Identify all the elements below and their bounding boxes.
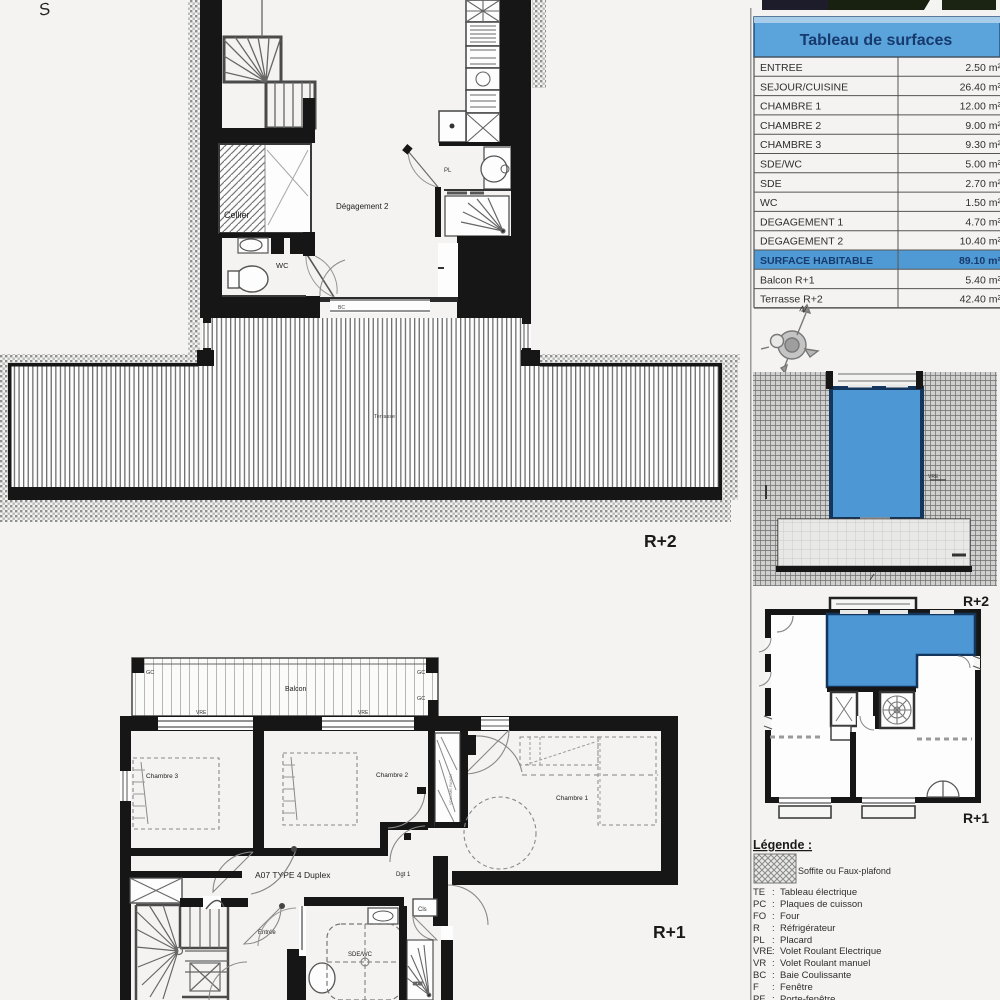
- svg-text:VOLUME RANGT: VOLUME RANGT: [448, 772, 453, 805]
- svg-text:TE: TE: [753, 887, 765, 898]
- svg-text:9.30 m²: 9.30 m²: [965, 139, 1000, 151]
- svg-text:89.10 m²: 89.10 m²: [959, 255, 1000, 267]
- svg-text:2.70 m²: 2.70 m²: [965, 178, 1000, 190]
- svg-text:R: R: [753, 923, 760, 934]
- svg-text:Plaques de cuisson: Plaques de cuisson: [780, 899, 862, 910]
- svg-text:Légende :: Légende :: [753, 838, 812, 852]
- svg-text:Fenêtre: Fenêtre: [780, 982, 813, 993]
- svg-text:PL: PL: [444, 168, 452, 174]
- svg-text::: :: [772, 970, 775, 981]
- svg-text:SDE: SDE: [760, 178, 782, 190]
- svg-text:BC: BC: [338, 305, 345, 311]
- svg-text:Four: Four: [780, 911, 800, 922]
- svg-text::: :: [772, 911, 775, 922]
- svg-text:GC: GC: [417, 696, 425, 702]
- svg-text:SDE/WC: SDE/WC: [348, 952, 373, 958]
- svg-text:Réfrigérateur: Réfrigérateur: [780, 923, 835, 934]
- svg-text:DEGAGEMENT 1: DEGAGEMENT 1: [760, 216, 843, 228]
- svg-text:Volet Roulant Electrique: Volet Roulant Electrique: [780, 946, 881, 957]
- svg-text:VRE: VRE: [358, 710, 369, 716]
- svg-text:A07 TYPE 4 Duplex: A07 TYPE 4 Duplex: [255, 870, 331, 880]
- svg-text:VR: VR: [753, 958, 766, 969]
- svg-text:5.40 m²: 5.40 m²: [965, 274, 1000, 286]
- svg-text:Terrasse R+2: Terrasse R+2: [760, 294, 823, 306]
- svg-text:WC: WC: [276, 261, 289, 270]
- svg-text:ENTREE: ENTREE: [760, 62, 803, 74]
- svg-text:VRE: VRE: [196, 710, 207, 716]
- svg-text:12.00 m²: 12.00 m²: [960, 101, 1000, 113]
- svg-text:R+1: R+1: [963, 810, 989, 826]
- svg-text:FO: FO: [753, 911, 766, 922]
- svg-text:1.50 m²: 1.50 m²: [965, 197, 1000, 209]
- svg-text:2.50 m²: 2.50 m²: [965, 62, 1000, 74]
- svg-text:SDE: SDE: [413, 981, 422, 986]
- svg-text:Tableau électrique: Tableau électrique: [780, 887, 857, 898]
- svg-text:WC: WC: [760, 197, 778, 209]
- svg-text:R+2: R+2: [963, 593, 989, 609]
- svg-text:Balcon: Balcon: [285, 686, 307, 693]
- svg-text:BC: BC: [753, 970, 766, 981]
- svg-text::: :: [772, 946, 775, 957]
- svg-text::: :: [772, 958, 775, 969]
- svg-text::: :: [772, 923, 775, 934]
- svg-text:Chambre 2: Chambre 2: [376, 772, 409, 779]
- svg-text:42.40 m²: 42.40 m²: [960, 294, 1000, 306]
- svg-text:Terrasse: Terrasse: [374, 414, 395, 420]
- svg-text:Chambre 3: Chambre 3: [146, 773, 179, 780]
- svg-text:Balcon R+1: Balcon R+1: [760, 274, 815, 286]
- svg-text:Cls: Cls: [418, 907, 427, 913]
- svg-text:Baie Coulissante: Baie Coulissante: [780, 970, 851, 981]
- svg-text:CHAMBRE 3: CHAMBRE 3: [760, 139, 821, 151]
- svg-text:Soffite ou Faux-plafond: Soffite ou Faux-plafond: [798, 866, 891, 876]
- svg-text:GC: GC: [417, 670, 425, 676]
- svg-text::: :: [772, 899, 775, 910]
- svg-text:SURFACE HABITABLE: SURFACE HABITABLE: [760, 255, 873, 267]
- svg-text:PL: PL: [753, 935, 765, 946]
- svg-text:4.70 m²: 4.70 m²: [965, 216, 1000, 228]
- svg-text::: :: [772, 887, 775, 898]
- svg-text:GC: GC: [146, 670, 154, 676]
- svg-text:R+2: R+2: [644, 531, 677, 551]
- svg-text:Cellier: Cellier: [224, 210, 250, 220]
- svg-text::: :: [772, 994, 775, 1000]
- svg-text:9.00 m²: 9.00 m²: [965, 120, 1000, 132]
- svg-text:Placard: Placard: [780, 935, 812, 946]
- svg-text:Porte-fenêtre: Porte-fenêtre: [780, 994, 835, 1000]
- svg-text:Tableau de surfaces: Tableau de surfaces: [800, 32, 953, 49]
- svg-text:CHAMBRE 2: CHAMBRE 2: [760, 120, 821, 132]
- svg-text:5.00 m²: 5.00 m²: [965, 159, 1000, 171]
- svg-text:SDE/WC: SDE/WC: [760, 159, 802, 171]
- svg-text:Chambre 1: Chambre 1: [556, 795, 589, 802]
- svg-text:PF: PF: [753, 994, 765, 1000]
- svg-text:Volet Roulant manuel: Volet Roulant manuel: [780, 958, 870, 969]
- svg-text::: :: [772, 982, 775, 993]
- svg-text:Dgt 1: Dgt 1: [396, 872, 411, 878]
- svg-text:F: F: [753, 982, 759, 993]
- svg-text:PC: PC: [753, 899, 766, 910]
- svg-text:26.40 m²: 26.40 m²: [960, 81, 1000, 93]
- svg-text:10.40 m²: 10.40 m²: [960, 236, 1000, 248]
- svg-text::: :: [772, 935, 775, 946]
- svg-text:DEGAGEMENT 2: DEGAGEMENT 2: [760, 236, 843, 248]
- svg-text:Dégagement 2: Dégagement 2: [336, 202, 389, 211]
- svg-text:R+1: R+1: [653, 922, 686, 942]
- svg-text:VRE: VRE: [928, 474, 939, 480]
- svg-text:VRE: VRE: [753, 946, 773, 957]
- svg-text:CHAMBRE 1: CHAMBRE 1: [760, 101, 821, 113]
- svg-text:SEJOUR/CUISINE: SEJOUR/CUISINE: [760, 81, 848, 93]
